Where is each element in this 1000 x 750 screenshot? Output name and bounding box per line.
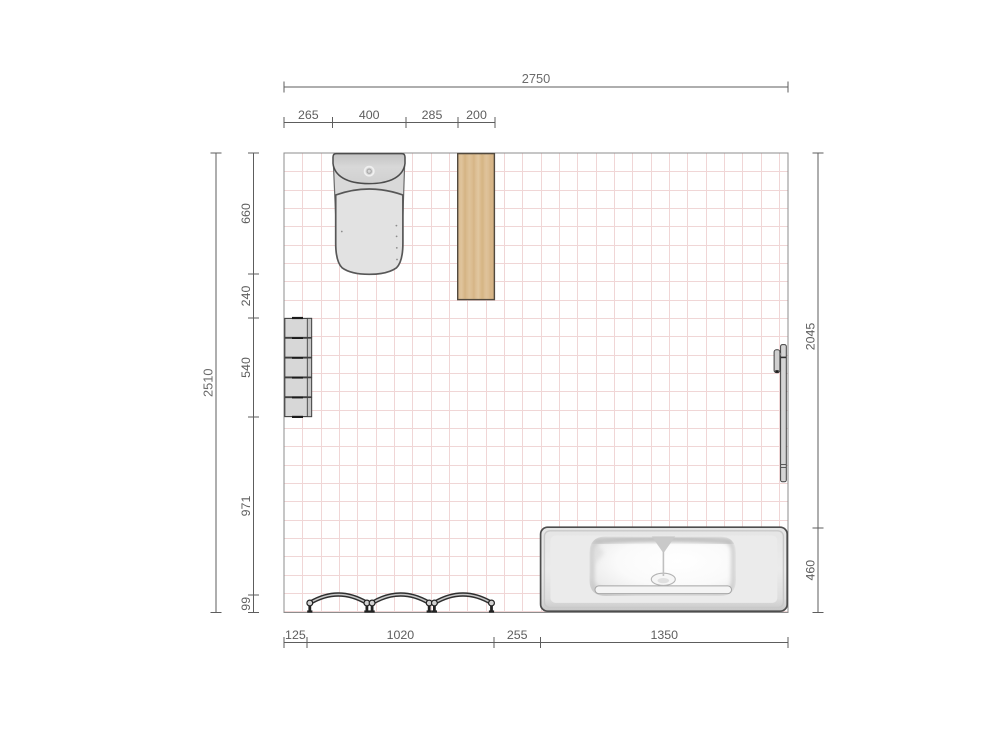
svg-text:2750: 2750 <box>522 71 550 86</box>
svg-text:1020: 1020 <box>387 628 415 642</box>
svg-text:660: 660 <box>239 203 253 224</box>
svg-text:971: 971 <box>239 496 253 517</box>
svg-text:240: 240 <box>239 286 253 307</box>
svg-text:285: 285 <box>422 108 443 122</box>
svg-text:265: 265 <box>298 108 319 122</box>
svg-text:255: 255 <box>507 628 528 642</box>
svg-text:2510: 2510 <box>201 369 216 397</box>
svg-text:540: 540 <box>239 357 253 378</box>
svg-text:200: 200 <box>466 108 487 122</box>
svg-text:125: 125 <box>285 628 306 642</box>
svg-text:400: 400 <box>359 108 380 122</box>
svg-text:2045: 2045 <box>804 323 818 351</box>
svg-text:99: 99 <box>239 597 253 611</box>
svg-text:1350: 1350 <box>651 628 679 642</box>
svg-text:460: 460 <box>804 560 818 581</box>
